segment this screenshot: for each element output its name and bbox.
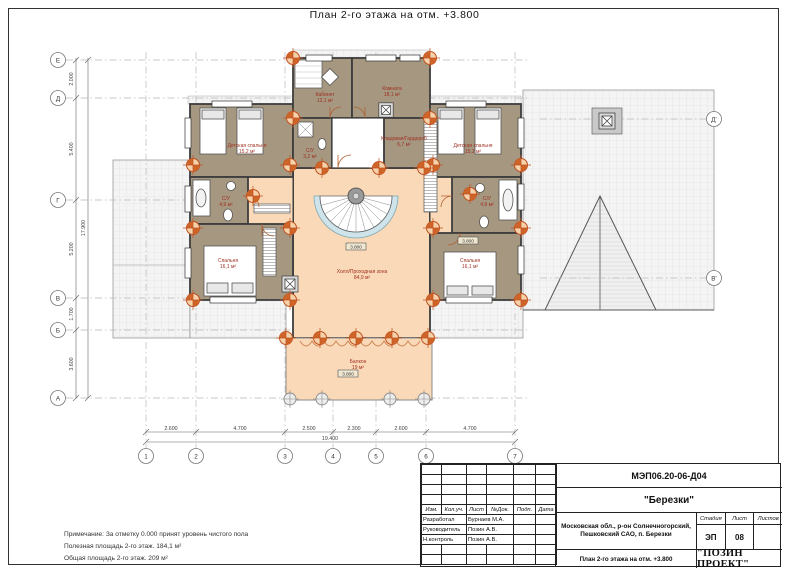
room-area: 16,1 м² <box>462 264 479 270</box>
project-name: "Березки" <box>556 488 782 513</box>
doc-number: МЭП06.20-06-Д04 <box>556 464 782 488</box>
company-name: "ПОЗИН ПРОЕКТ" <box>697 550 782 568</box>
svg-text:2.000: 2.000 <box>69 72 75 85</box>
svg-text:2.500: 2.500 <box>302 426 315 432</box>
svg-text:6: 6 <box>424 453 428 460</box>
dimension-left-labels: 2.000 5.400 5.200 1.700 3.600 17.900 <box>69 72 87 370</box>
stage-block: Стадия Лист Листов ЭП 08 <box>697 513 782 549</box>
notes: Примечание: За отметку 0.000 принят уров… <box>64 529 248 565</box>
svg-text:Е: Е <box>56 57 60 64</box>
room-area: 12,1 м² <box>317 98 334 104</box>
svg-text:4.700: 4.700 <box>233 426 246 432</box>
sheet-label: Лист <box>726 513 755 524</box>
svg-text:5: 5 <box>374 453 378 460</box>
title-block-main: МЭП06.20-06-Д04 "Березки" Московская обл… <box>556 464 782 566</box>
stage-label: Стадия <box>697 513 726 524</box>
title-block-revision-grid: Изм. Кол.уч. Лист №Док. Подп. Дата Разра… <box>421 464 556 566</box>
level-mark: 3.800 <box>350 244 362 249</box>
chimney-icon <box>282 276 298 292</box>
svg-text:2.300: 2.300 <box>347 426 360 432</box>
role-name: Позин А.В. <box>467 535 514 545</box>
svg-text:7: 7 <box>513 453 517 460</box>
svg-text:5.400: 5.400 <box>69 142 75 155</box>
role-name: Позин А.В. <box>467 525 514 535</box>
room-area: 6,7 м² <box>397 142 411 148</box>
svg-text:2.600: 2.600 <box>394 426 407 432</box>
svg-text:Б: Б <box>56 327 60 334</box>
stage-value: ЭП <box>697 525 726 549</box>
svg-text:В': В' <box>711 275 716 282</box>
col-header: Изм. <box>422 505 442 515</box>
svg-text:2: 2 <box>194 453 198 460</box>
stair-void <box>332 118 384 168</box>
svg-text:17.900: 17.900 <box>81 220 87 236</box>
role-name: Бурнаев М.А. <box>467 515 514 525</box>
svg-text:5.200: 5.200 <box>69 242 75 255</box>
drawing-title: План 2-го этажа на отм. +3.800 <box>556 550 697 568</box>
room-area: 16,1 м² <box>220 264 237 270</box>
sheets-label: Листов <box>754 513 782 524</box>
room-area: 18,1 м² <box>384 92 401 98</box>
svg-text:Д: Д <box>56 95 61 102</box>
room-area: 3,2 м² <box>303 154 317 160</box>
sheets-value <box>754 525 782 549</box>
level-mark: 3.800 <box>462 238 474 243</box>
svg-text:1.700: 1.700 <box>69 307 75 320</box>
svg-text:3.600: 3.600 <box>69 357 75 370</box>
svg-text:1: 1 <box>144 453 148 460</box>
chimney-icon <box>599 113 615 129</box>
note-line: Полезная площадь 2-го этаж. 184,1 м² <box>64 541 248 553</box>
role-label: Разработал <box>422 515 467 525</box>
col-header: №Док. <box>487 505 514 515</box>
room-area: 84,9 м² <box>354 275 371 281</box>
svg-text:Д': Д' <box>711 116 716 123</box>
level-mark: 3.800 <box>342 371 354 376</box>
sheet-value: 08 <box>726 525 755 549</box>
col-header: Кол.уч. <box>442 505 467 515</box>
drawing-sheet: План 2-го этажа на отм. +3.800 <box>0 0 789 575</box>
note-line: Общая площадь 2-го этаж. 209 м² <box>64 553 248 565</box>
col-header: Подп. <box>514 505 536 515</box>
chimney-icon <box>379 103 393 117</box>
svg-text:4: 4 <box>331 453 335 460</box>
title-block: Изм. Кол.уч. Лист №Док. Подп. Дата Разра… <box>420 463 781 567</box>
axis-circles-bottom: 1 2 3 4 5 6 7 <box>139 449 523 464</box>
room-area: 4,9 м² <box>480 202 494 208</box>
svg-text:2.600: 2.600 <box>164 426 177 432</box>
col-header: Дата <box>536 505 557 515</box>
axis-circles-left: Е Д Г В Б А <box>51 53 66 406</box>
note-line: Примечание: За отметку 0.000 принят уров… <box>64 529 248 541</box>
svg-text:В: В <box>56 295 60 302</box>
dimension-bottom-labels: 2.600 4.700 2.500 2.300 2.600 4.700 19.4… <box>164 426 476 442</box>
svg-text:Г: Г <box>56 197 60 204</box>
project-address: Московская обл., р-он Солнечногорский, П… <box>556 513 697 549</box>
svg-text:4.700: 4.700 <box>463 426 476 432</box>
room-area: 15,2 м² <box>239 149 256 155</box>
role-label: Н.контроль <box>422 535 467 545</box>
svg-text:3: 3 <box>283 453 287 460</box>
svg-text:19.400: 19.400 <box>322 436 338 442</box>
role-label: Руководитель <box>422 525 467 535</box>
room-area: 15,2 м² <box>465 149 482 155</box>
col-header: Лист <box>467 505 487 515</box>
room-area: 4,9 м² <box>219 202 233 208</box>
